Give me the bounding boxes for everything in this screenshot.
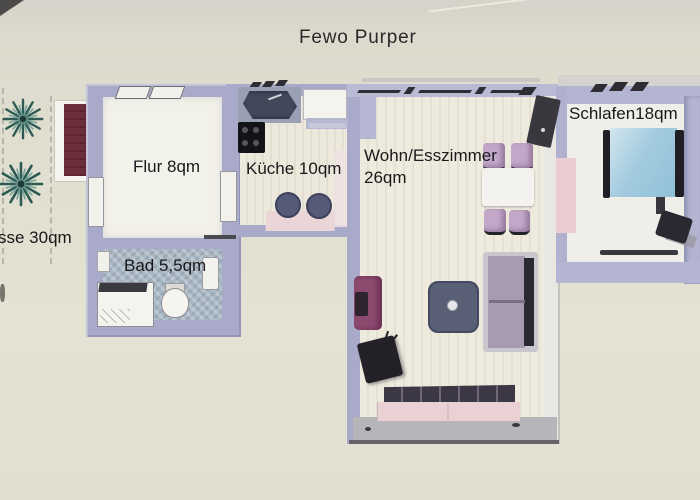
bedroom-top-ledge xyxy=(558,75,700,86)
stool-icon xyxy=(306,193,332,219)
terrasse-room-label: sse 30qm xyxy=(0,228,72,248)
sofa-cushion-divider xyxy=(489,300,525,303)
door-threshold xyxy=(204,235,236,239)
bedroom-threshold-line xyxy=(600,250,678,255)
sideboard-bench-seam xyxy=(447,403,449,420)
tv-cabinet-knob xyxy=(541,128,545,132)
bed-footboard xyxy=(675,130,684,197)
window-icon xyxy=(149,86,186,99)
paper-smudge xyxy=(0,284,5,302)
armchair-cushion xyxy=(355,292,368,316)
dining-chair-icon xyxy=(509,210,530,235)
kitchen-shelf xyxy=(309,123,346,128)
balcony-fixing-dot xyxy=(512,423,520,427)
dining-chair-icon xyxy=(511,143,533,171)
living-left-wall xyxy=(347,84,360,444)
bedroom-right-wall xyxy=(684,96,700,284)
balcony-edge xyxy=(349,440,559,444)
window-icon xyxy=(418,90,472,93)
living-top-ledge xyxy=(362,78,540,82)
fridge-icon xyxy=(303,89,347,120)
double-bed-icon xyxy=(610,128,677,197)
door-icon xyxy=(220,171,237,222)
sofa-shadow xyxy=(524,258,534,346)
door-icon xyxy=(88,177,104,227)
plant-icon xyxy=(0,160,45,208)
plan-title: Fewo Purper xyxy=(299,27,417,49)
wohnzimmer-label-line2: 26qm xyxy=(364,167,497,189)
window-icon xyxy=(115,86,152,99)
stool-icon xyxy=(275,192,301,218)
schlafzimmer-room-label: Schlafen18qm xyxy=(569,104,678,124)
bedroom-top-wall xyxy=(556,86,700,104)
bed-headboard xyxy=(603,130,610,198)
wohnzimmer-label-line1: Wohn/Esszimmer xyxy=(364,145,497,167)
flur-room-label: Flur 8qm xyxy=(133,157,200,177)
stove-icon xyxy=(238,122,265,153)
shower-tray-hatch xyxy=(100,309,130,323)
window-icon xyxy=(357,90,401,93)
photo-corner-mark xyxy=(0,0,24,16)
balcony-fixing-dot xyxy=(365,427,371,431)
shower-screen xyxy=(98,283,147,292)
paper-crease xyxy=(428,0,533,12)
floor-plan-photo: Fewo Purper xyxy=(0,0,700,500)
bad-room-label: Bad 5,5qm xyxy=(124,256,206,276)
sink-icon xyxy=(243,91,297,119)
wardrobe-icon xyxy=(556,158,576,233)
radiator-icon xyxy=(97,251,110,272)
kueche-room-label: Küche 10qm xyxy=(246,159,341,179)
living-corner-column xyxy=(360,97,376,139)
plant-icon xyxy=(1,97,45,141)
dining-chair-icon xyxy=(484,209,506,235)
coffee-table-center xyxy=(447,300,458,311)
toilet-icon xyxy=(161,288,189,318)
wohnzimmer-room-label: Wohn/Esszimmer 26qm xyxy=(364,145,497,189)
bedroom-bottom-wall xyxy=(556,262,700,283)
